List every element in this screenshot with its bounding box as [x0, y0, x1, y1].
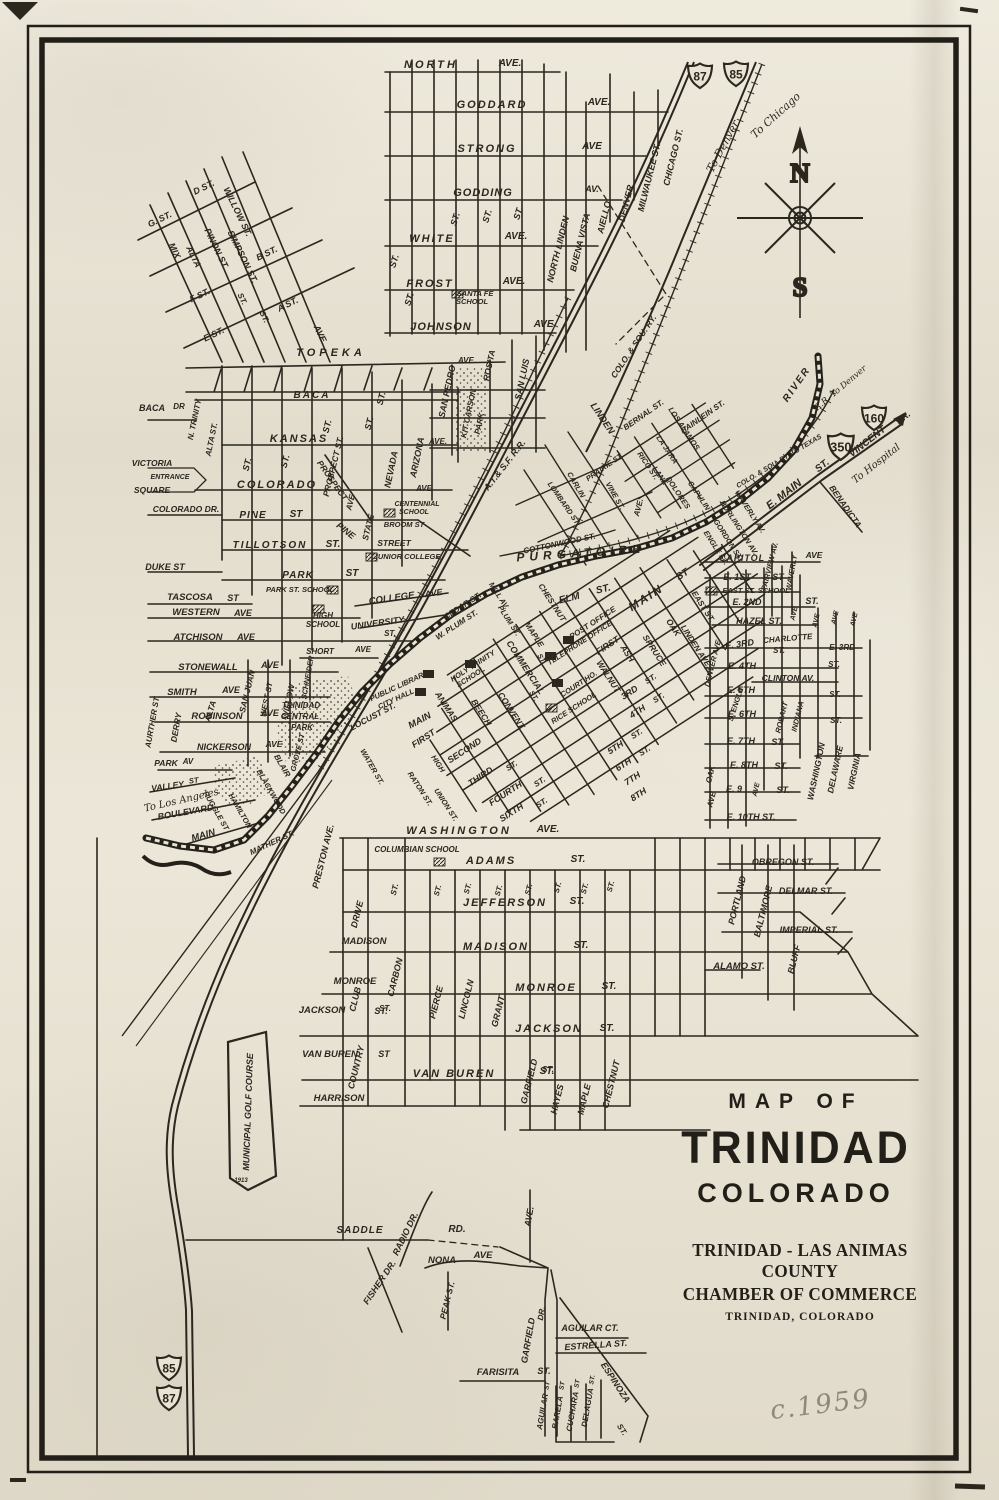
street-label: MAPLE	[575, 1082, 593, 1116]
street-label: ST.	[542, 1065, 554, 1074]
street-label: MONROE	[334, 976, 377, 987]
street-label: SCHOOL	[306, 620, 340, 629]
street-label: RD.	[448, 1224, 465, 1235]
street-label: E. 4TH	[728, 661, 757, 671]
street-label: AVE	[415, 484, 433, 493]
credit-line-3: TRINIDAD, COLORADO	[655, 1311, 945, 1323]
street-label: HAYES	[549, 1083, 566, 1115]
street-label: PLUM ST.	[496, 604, 522, 638]
street-label: SPRUCE	[641, 633, 669, 668]
street-label: ROSITA	[481, 349, 497, 382]
street-label: D ST.	[191, 178, 215, 197]
street-label: TRINIDAD	[282, 701, 320, 710]
street-label: ST.	[600, 1023, 615, 1034]
street-label: WASHINGTON	[805, 741, 827, 801]
street-label: VAN BUREN	[413, 1068, 496, 1080]
street-label: CAPULIN	[686, 479, 712, 512]
street-label: MADISON	[342, 936, 388, 947]
street-label: ALTA ST.	[203, 422, 219, 458]
credit-block: TRINIDAD - LAS ANIMAS COUNTY CHAMBER OF …	[655, 1240, 945, 1323]
street-label: KANSAS	[270, 433, 328, 445]
street-label: ST	[558, 1380, 567, 1390]
street-label: ST.	[279, 454, 292, 469]
street-label: ST.	[602, 981, 617, 992]
street-label: ST.	[384, 629, 396, 638]
street-label: CLUB	[347, 985, 363, 1012]
compass-north-letter: N	[790, 158, 810, 188]
street-label: To Chicago	[748, 90, 803, 141]
street-label: ATCHISON	[173, 632, 224, 643]
street-label: ST.	[537, 1366, 550, 1376]
street-label: NICKERSON	[197, 742, 252, 752]
map-page: N S 87853501608587 NORTHAVE.GODDARDAVE.S…	[0, 0, 999, 1500]
street-label: ST.	[774, 761, 787, 771]
street-label: CENTENNIAL	[394, 501, 439, 508]
street-label: ST.	[570, 896, 585, 907]
street-label: PARK ST. SCHOOL	[266, 585, 334, 594]
street-label: HAZEL ST.	[736, 616, 782, 626]
park-areas	[214, 368, 486, 810]
street-label: AVE.	[311, 322, 329, 346]
street-label: PORTLAND	[726, 874, 748, 925]
street-label: AVE	[233, 608, 253, 618]
street-label: MILWAUKEE ST.	[636, 142, 663, 213]
street-label: SADDLE	[336, 1225, 383, 1236]
street-label: AVE	[789, 606, 799, 622]
street-label: ELM	[558, 591, 582, 607]
street-label: BARELA	[550, 1395, 565, 1430]
street-label: STRONG	[457, 143, 516, 155]
street-label: AVE	[849, 612, 859, 628]
street-label: ST.	[574, 940, 589, 951]
street-label: AVE.	[533, 319, 557, 330]
street-label: BACA	[139, 403, 165, 413]
street-label: MADISON	[463, 941, 529, 953]
credit-line-2: CHAMBER OF COMMERCE	[658, 1284, 942, 1305]
title-block: MAP OF TRINIDAD COLORADO	[672, 1090, 920, 1209]
street-label: DUKE ST	[145, 562, 186, 572]
street-label: ST.	[375, 391, 388, 406]
street-label: BEECH	[469, 697, 494, 728]
street-label: ST.	[579, 882, 590, 895]
street-label: DELAWARE	[825, 744, 845, 794]
street-label: JUNIOR COLLEGE	[374, 552, 442, 561]
compass-rose: N S	[737, 126, 863, 318]
street-label: ST	[772, 572, 785, 582]
street-label: ST.	[828, 660, 840, 669]
street-label: INDIANA	[789, 700, 805, 732]
street-label: PINE	[239, 510, 266, 521]
court-house-marker	[552, 679, 563, 687]
street-label: JOHNSON	[410, 321, 471, 333]
street-label: BERNAL ST.	[622, 398, 666, 432]
street-label: LINCOLN	[456, 978, 475, 1020]
street-label: LA JARA	[654, 434, 679, 466]
street-label: AVE	[260, 660, 280, 670]
street-label: CENTRAL	[281, 712, 319, 721]
street-label: BUENA VISTA	[568, 212, 592, 273]
street-label: AV.	[584, 184, 599, 194]
street-label: E. 1ST	[723, 572, 752, 582]
street-label: E. 2ND	[732, 597, 762, 607]
street-label: SHORT	[306, 647, 335, 656]
street-label: UNIVERSITY	[350, 614, 406, 632]
street-label: E ST.	[202, 325, 226, 344]
street-label: F ST.	[188, 286, 212, 304]
street-label: EAST ST. SCHOOL	[722, 586, 790, 595]
map-title: TRINIDAD	[677, 1122, 915, 1174]
street-label: CHICAGO ST.	[661, 128, 685, 187]
street-label: FAIRVIEW AV.	[759, 541, 780, 591]
street-label: ST.	[773, 646, 785, 655]
street-label: ST	[378, 1049, 391, 1059]
street-label: SQUARE	[134, 485, 171, 495]
street-label: WATER ST.	[358, 747, 386, 786]
columbian-school-marker	[434, 858, 445, 866]
street-label: 5TH	[606, 738, 626, 756]
street-label: E. 10TH ST.	[727, 812, 776, 822]
street-label: MONROE	[515, 982, 577, 994]
street-label: AVE	[423, 587, 444, 600]
street-label: LINDEN	[588, 401, 618, 437]
street-label: ST.	[462, 882, 473, 895]
street-label: OBREGON ST.	[752, 857, 814, 867]
street-label: TOPEKA	[296, 347, 366, 359]
street-label: TASCOSA	[167, 592, 213, 603]
street-label: STREET	[377, 538, 411, 548]
street-label: VINE ST.	[604, 480, 627, 511]
street-label: NEVADA	[382, 450, 400, 489]
street-label: 6TH	[614, 755, 634, 773]
us-highway-shield-85: 85	[724, 62, 748, 87]
street-label: UNION ST.	[432, 787, 460, 823]
street-label: E. 7TH	[727, 736, 756, 746]
street-label: WHITE	[409, 233, 454, 245]
street-label: ST.	[402, 291, 416, 307]
street-label: ST.	[571, 854, 586, 865]
street-label: ARIZONA	[408, 436, 427, 479]
street-label: VICTORIA	[132, 458, 172, 468]
street-label: MUNICIPAL GOLF COURSE	[241, 1052, 255, 1171]
street-label: VALLEY	[151, 779, 186, 794]
street-label: AVE.	[428, 437, 447, 446]
street-label: RATON ST.	[406, 770, 435, 808]
street-label: AGUILAR	[535, 1393, 550, 1432]
street-label: WESTERN	[172, 607, 221, 618]
street-label: AVE	[473, 1250, 493, 1261]
street-label: COLLEGE	[368, 590, 416, 607]
street-label: CLINTON AV.	[762, 673, 814, 683]
street-label: FROST	[406, 278, 453, 290]
street-label: ENTRANCE	[151, 474, 190, 481]
street-label: AV	[182, 757, 194, 766]
street-label: ST.	[615, 1422, 629, 1437]
shield-number: 85	[729, 67, 743, 81]
street-label: DR	[173, 402, 185, 411]
street-label: AVE	[581, 141, 602, 152]
street-label: CARBON	[385, 956, 404, 997]
street-label: ST	[227, 593, 240, 603]
street-label: ADAMS	[465, 855, 516, 867]
street-label: ST.	[829, 690, 841, 699]
street-label: AVE	[830, 610, 840, 626]
compass-south-letter: S	[792, 272, 807, 302]
street-label: ALTA	[184, 243, 203, 269]
street-label: ST.	[389, 883, 401, 897]
street-label: 1913	[234, 1178, 248, 1184]
street-label: AVE.	[536, 824, 560, 835]
street-label: ST	[290, 509, 304, 520]
street-label: E. 9	[726, 784, 742, 794]
street-label: E. MAIN	[764, 476, 805, 512]
street-label: COLUMBIAN SCHOOL	[374, 845, 459, 854]
street-label: 7TH	[623, 769, 643, 787]
street-label: ST.	[432, 884, 443, 897]
street-label: ST.	[552, 881, 563, 894]
street-label: CONVENT	[496, 690, 527, 731]
street-label: 4TH	[627, 702, 648, 720]
street-label: DELAGUA	[580, 1387, 596, 1428]
street-label: AVE.	[498, 58, 522, 69]
street-label: JEFFERSON	[463, 897, 547, 909]
credit-line-1: TRINIDAD - LAS ANIMAS COUNTY	[658, 1240, 942, 1282]
street-label: HIGH	[313, 611, 333, 620]
shield-number: 87	[693, 69, 707, 83]
street-label: ST.	[321, 419, 334, 434]
street-label: ST.	[637, 744, 652, 758]
street-label: MAPLE	[523, 620, 546, 649]
street-label: AVE.	[457, 356, 476, 365]
street-label: ESPINOZA	[599, 1360, 632, 1404]
street-label: GARFIELD	[519, 1316, 537, 1364]
centennial-school-marker	[384, 509, 395, 517]
street-label: MAIN	[190, 827, 217, 845]
street-label: ST	[573, 1378, 582, 1388]
street-label: BENADICTA	[827, 483, 864, 529]
street-label: AVE	[811, 613, 821, 629]
street-label: BACA	[294, 390, 331, 401]
street-label: ST.	[805, 596, 818, 606]
street-label: ST.	[363, 416, 376, 431]
street-label: AVE.	[587, 97, 611, 108]
street-label: PARK	[282, 570, 314, 581]
street-label: ROBINSON	[191, 711, 243, 722]
street-label: IMPERIAL ST.	[780, 925, 839, 935]
street-label: DR.	[894, 409, 912, 426]
street-label: CAPITOL	[719, 553, 765, 563]
street-label: E. 6TH	[728, 709, 757, 719]
street-label: FISHER DR.	[361, 1258, 398, 1306]
street-label: ST	[188, 775, 200, 785]
city-hall-marker	[415, 688, 426, 696]
street-label: TILLOTSON	[233, 540, 308, 551]
shield-number: 160	[864, 411, 884, 425]
street-label: ST.	[534, 796, 549, 810]
street-label: HARRISON	[314, 1093, 366, 1104]
street-label: SAN JUAN	[237, 668, 257, 713]
street-label: ST.	[605, 880, 616, 893]
east-st-school-marker	[706, 587, 717, 595]
street-label: 8TH	[629, 785, 649, 803]
street-label: E. 8TH	[730, 760, 759, 770]
street-label: NONA	[428, 1255, 456, 1266]
street-label: SIXTH	[498, 801, 526, 824]
street-label: VAN BUREN	[302, 1049, 359, 1060]
street-label: ESTRELLA ST.	[564, 1338, 628, 1352]
street-label: DRIVE	[349, 899, 366, 929]
street-label: OAK	[704, 763, 717, 784]
street-label: GARFIELD	[519, 1057, 540, 1105]
us-highway-shield-87: 87	[157, 1386, 181, 1411]
street-label: AVE	[705, 790, 718, 809]
map-kicker: MAP OF	[672, 1090, 920, 1114]
street-label: AVE	[265, 739, 283, 749]
street-label: ST.	[523, 883, 534, 896]
street-label: ST.	[326, 539, 341, 550]
street-label: ALAMO ST.	[712, 961, 765, 972]
street-label: GODDARD	[457, 99, 528, 111]
street-label: ASH	[618, 642, 637, 664]
street-label: E. 3RD	[725, 637, 756, 651]
street-label: CHESTNUT	[600, 1058, 622, 1109]
street-label: SMITH	[167, 687, 198, 698]
street-label: AVE	[236, 632, 256, 642]
street-label: ST	[543, 1380, 552, 1390]
street-label: PRESTON AVE.	[310, 823, 336, 889]
rice-school-marker	[546, 704, 557, 712]
street-label: DELMAR ST.	[779, 886, 833, 896]
street-label: AVE.	[502, 276, 526, 287]
street-label: AVE	[751, 782, 761, 798]
street-label: CUCHARA	[565, 1391, 581, 1433]
street-label: MIX	[167, 241, 183, 261]
street-label: GODDING	[453, 187, 513, 199]
street-label: PEAK ST.	[438, 1280, 457, 1320]
street-label: AVE	[354, 645, 372, 654]
street-label: ST.	[511, 205, 525, 221]
street-label: AGUILAR CT.	[560, 1323, 618, 1333]
street-label: PARK	[291, 723, 314, 732]
street-label: AVE	[805, 550, 823, 560]
us-highway-shield-85: 85	[157, 1356, 181, 1381]
street-label: AVE	[221, 685, 241, 695]
street-label: COLORADO DR.	[153, 504, 220, 514]
street-label: RIVER	[781, 365, 813, 405]
street-label: SECOND	[445, 736, 483, 766]
river-west-squiggle	[143, 856, 231, 874]
street-label: ST.	[830, 716, 842, 725]
street-label: JACKSON	[515, 1023, 583, 1035]
street-label: AVE.	[522, 1206, 536, 1229]
street-label: PARK	[154, 758, 178, 768]
street-label: ST.	[480, 208, 494, 224]
street-label: STATE	[360, 513, 376, 542]
street-label: ST.	[588, 1374, 597, 1385]
street-label: WASHINGTON	[406, 825, 512, 837]
shield-number: 85	[162, 1361, 176, 1375]
street-label: NORTH LINDEN	[545, 215, 571, 284]
street-label: ST.	[629, 727, 644, 741]
street-label: ST.	[379, 1004, 391, 1013]
us-highway-shield-87: 87	[688, 64, 712, 89]
street-label: COLORADO	[237, 479, 317, 491]
street-label: STONEWALL	[178, 662, 238, 673]
street-label: JACKSON	[299, 1005, 347, 1016]
street-label: ST.	[813, 457, 831, 475]
map-subtitle: COLORADO	[672, 1178, 920, 1209]
street-label: ST.	[236, 292, 249, 307]
street-label: AVE.	[504, 231, 528, 242]
street-label: N. TRINITY	[186, 398, 204, 441]
street-label: BLUFF	[786, 943, 803, 975]
street-label: BROOM ST	[384, 520, 426, 529]
street-label: ST	[346, 568, 360, 579]
street-label: DERRY	[169, 711, 184, 743]
shield-number: 87	[162, 1391, 176, 1405]
street-label: ST.	[493, 884, 504, 897]
street-label: E. 3RD	[829, 643, 855, 652]
street-label: VIRGINIA	[845, 752, 863, 791]
street-label: ST.	[771, 737, 784, 747]
street-label: FARISITA	[477, 1367, 520, 1378]
street-label: BALTIMORE	[752, 883, 775, 938]
street-label: CHARLOTTE	[763, 632, 814, 645]
street-label: SCHOOL	[399, 509, 429, 516]
street-label: SCHOOL	[456, 297, 489, 306]
street-label: ST.	[448, 211, 462, 227]
street-label: COLO. & SOU. RY.	[609, 313, 659, 380]
street-label: A ST.	[275, 295, 300, 314]
street-label: FIRST	[594, 633, 623, 656]
street-label: NORTH	[404, 59, 458, 71]
street-label: ROBART	[773, 699, 790, 734]
street-label: ST.	[776, 785, 789, 795]
